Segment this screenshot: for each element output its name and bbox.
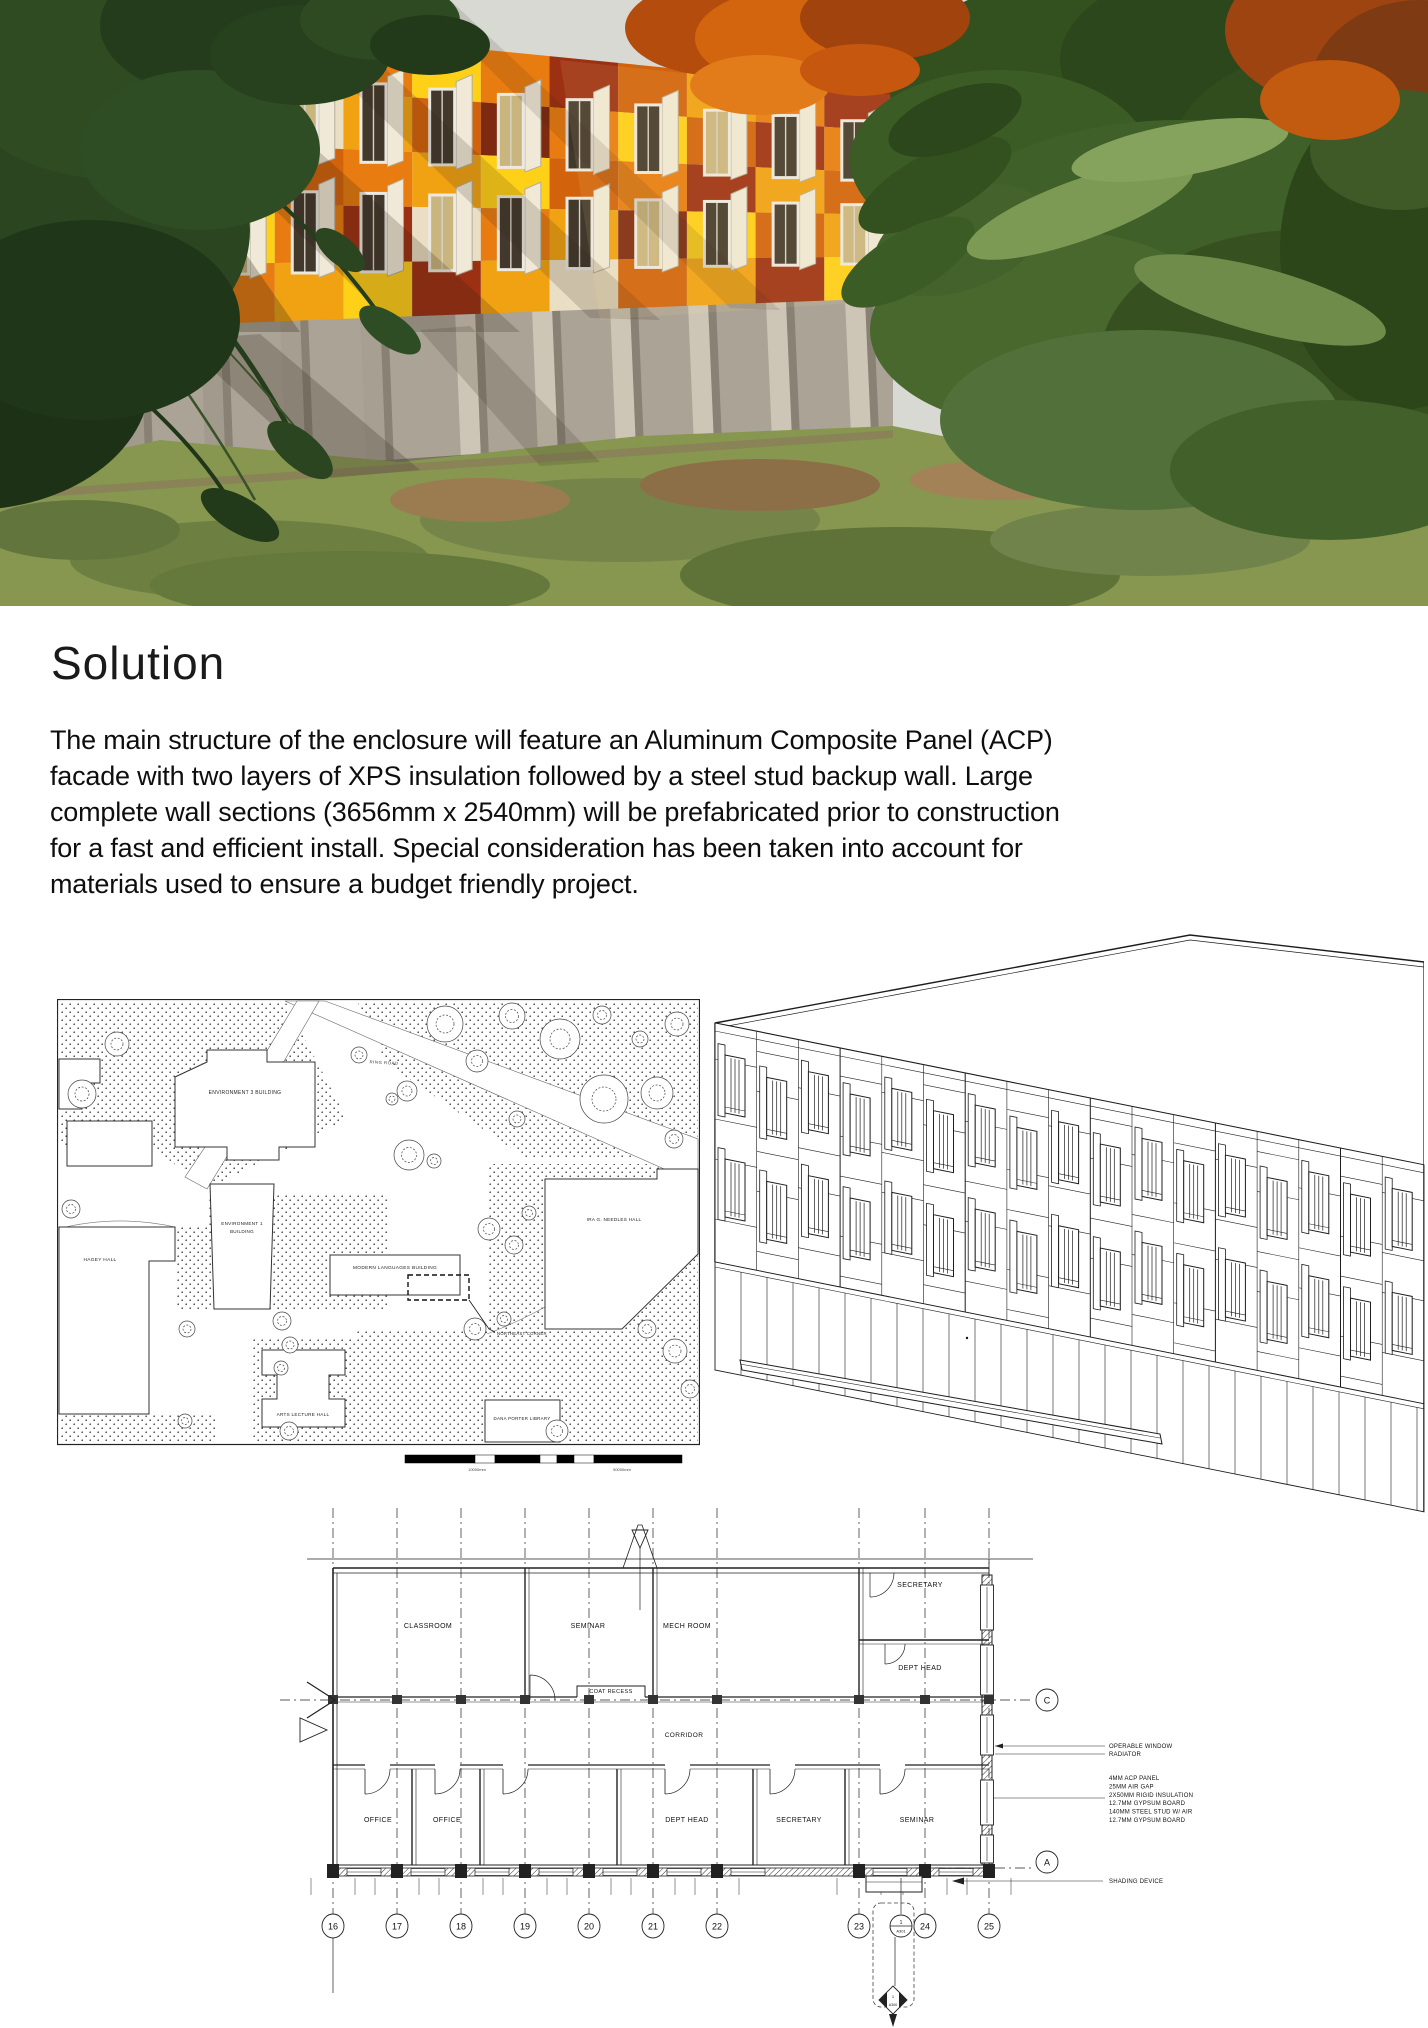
grid-bubble-label: 16	[328, 1922, 338, 1932]
room-label: DEPT HEAD	[665, 1817, 709, 1824]
section-marker-label: 1	[900, 1920, 903, 1926]
site-plan-label: BUILDING	[230, 1229, 254, 1234]
door-swings	[365, 1573, 905, 1794]
grid-bubble-label: 19	[520, 1922, 530, 1932]
section-marker-label: A301	[896, 1929, 906, 1934]
site-plan-label: NORTHEAST CORNER	[497, 1331, 547, 1336]
grid-bubble-label: 18	[456, 1922, 466, 1932]
annotation-label: 12.7MM GYPSUM BOARD	[1109, 1801, 1186, 1807]
annotation-label: 25MM AIR GAP	[1109, 1784, 1154, 1790]
axonometric-drawing	[700, 920, 1428, 1520]
grid-bubble-label: 22	[712, 1922, 722, 1932]
room-label: CORRIDOR	[665, 1732, 704, 1739]
floor-plan-drawing: 16171819202122232425CA1A3011A300CLASSROO…	[225, 1480, 1200, 2028]
site-plan-label: ENVIRONMENT 3 BUILDING	[209, 1090, 282, 1096]
site-plan-label: ARTS LECTURE HALL	[277, 1412, 330, 1417]
grid-bubble-label: 23	[854, 1922, 864, 1932]
annotation-label: 140MM STEEL STUD W/ AIR	[1109, 1810, 1193, 1816]
site-plan-label: ENVIRONMENT 1	[221, 1221, 263, 1226]
grid-bubble-label: 20	[584, 1922, 594, 1932]
annotation-label: RADIATOR	[1109, 1752, 1142, 1758]
annotation-label: SHADING DEVICE	[1109, 1879, 1163, 1885]
room-label: COAT RECESS	[589, 1689, 632, 1695]
site-plan-label: HAGEY HALL	[83, 1257, 116, 1263]
section-marker-label: A300	[889, 2003, 897, 2007]
grid-bubble-label: 17	[392, 1922, 402, 1932]
solution-paragraph: The main structure of the enclosure will…	[50, 722, 1074, 902]
room-label: DEPT HEAD	[898, 1665, 942, 1672]
annotation-label: 4MM ACP PANEL	[1109, 1776, 1160, 1782]
annotation-label: OPERABLE WINDOW	[1109, 1744, 1172, 1750]
room-label: OFFICE	[433, 1817, 461, 1824]
room-label: SECRETARY	[897, 1582, 943, 1589]
room-label: SEMINAR	[571, 1623, 606, 1630]
grid-bubbles: 16171819202122232425CA	[322, 1689, 1058, 1938]
scale-label: 10000mm	[468, 1467, 486, 1472]
room-label: CLASSROOM	[404, 1623, 452, 1630]
site-plan-drawing: RING ROADENVIRONMENT 3 BUILDINGENVIRONME…	[57, 999, 700, 1475]
room-label: SECRETARY	[776, 1817, 822, 1824]
grid-bubble-label: 24	[920, 1922, 930, 1932]
axon-building	[715, 935, 1424, 1512]
site-plan-label: IRA G. NEEDLES HALL	[587, 1217, 642, 1222]
grid-bubble-label: 25	[984, 1922, 994, 1932]
annotation-label: 2X50MM RIGID INSULATION	[1109, 1793, 1193, 1799]
room-label: OFFICE	[364, 1817, 392, 1824]
room-label: MECH ROOM	[663, 1623, 711, 1630]
walls	[307, 1525, 1033, 1895]
building-render-image	[0, 0, 1428, 606]
scale-label: 50000mm	[613, 1467, 631, 1472]
room-label: SEMINAR	[900, 1817, 935, 1824]
section-arrow-west	[300, 1682, 335, 1742]
grid-bubble-label: 21	[648, 1922, 658, 1932]
solution-heading: Solution	[51, 636, 225, 690]
annotation-label: 12.7MM GYPSUM BOARD	[1109, 1818, 1186, 1824]
grid-bubble-label: A	[1044, 1858, 1050, 1868]
site-plan-label: DANA PORTER LIBRARY	[493, 1416, 550, 1421]
grid-bubble-label: C	[1044, 1696, 1051, 1706]
section-markers: 1A3011A300	[873, 1878, 914, 2027]
scale-bar: 10000mm50000mm	[405, 1455, 682, 1472]
site-plan-label: MODERN LANGUAGES BUILDING	[353, 1265, 437, 1271]
document-page: Solution The main structure of the enclo…	[0, 0, 1428, 2028]
